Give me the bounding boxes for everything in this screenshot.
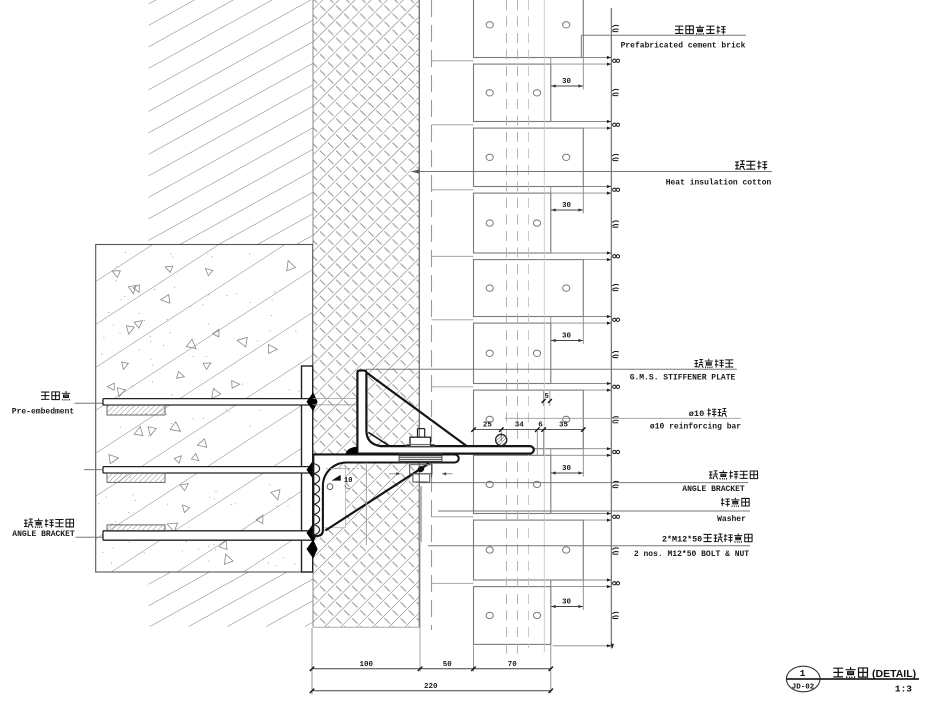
svg-text:70: 70 bbox=[508, 661, 518, 669]
svg-text:JD-02: JD-02 bbox=[792, 684, 815, 692]
svg-text:5: 5 bbox=[545, 393, 549, 401]
svg-text:25: 25 bbox=[483, 421, 493, 429]
svg-text:G.M.S. STIFFENER PLATE: G.M.S. STIFFENER PLATE bbox=[630, 373, 736, 382]
svg-text:ø10: ø10 bbox=[689, 409, 704, 419]
svg-text:ANGLE BRACKET: ANGLE BRACKET bbox=[12, 530, 75, 539]
svg-text:10: 10 bbox=[344, 477, 352, 485]
svg-text:30: 30 bbox=[562, 465, 572, 473]
svg-text:34: 34 bbox=[515, 421, 525, 429]
svg-text:ø10 reinforcing bar: ø10 reinforcing bar bbox=[650, 423, 741, 432]
svg-text:Heat insulation cotton: Heat insulation cotton bbox=[666, 179, 772, 188]
svg-text:Pre-embedment: Pre-embedment bbox=[12, 407, 75, 416]
svg-text:35: 35 bbox=[559, 421, 569, 429]
svg-text:50: 50 bbox=[443, 661, 453, 669]
svg-text:30: 30 bbox=[562, 333, 572, 341]
svg-text:2 nos. M12*50 BOLT & NUT: 2 nos. M12*50 BOLT & NUT bbox=[634, 550, 749, 559]
svg-text:30: 30 bbox=[562, 599, 572, 607]
svg-text:6: 6 bbox=[538, 421, 543, 429]
svg-text:(DETAIL): (DETAIL) bbox=[872, 668, 916, 680]
svg-text:1: 1 bbox=[800, 668, 806, 679]
svg-text:Prefabricated cement brick: Prefabricated cement brick bbox=[621, 42, 746, 51]
svg-text:30: 30 bbox=[562, 202, 572, 210]
svg-text:1:3: 1:3 bbox=[895, 684, 912, 695]
svg-text:30: 30 bbox=[562, 78, 572, 86]
svg-text:220: 220 bbox=[424, 683, 438, 691]
svg-text:100: 100 bbox=[360, 661, 374, 669]
svg-text:ANGLE BRACKET: ANGLE BRACKET bbox=[682, 485, 745, 494]
svg-text:2*M12*50: 2*M12*50 bbox=[662, 535, 702, 545]
svg-text:Washer: Washer bbox=[717, 515, 746, 524]
